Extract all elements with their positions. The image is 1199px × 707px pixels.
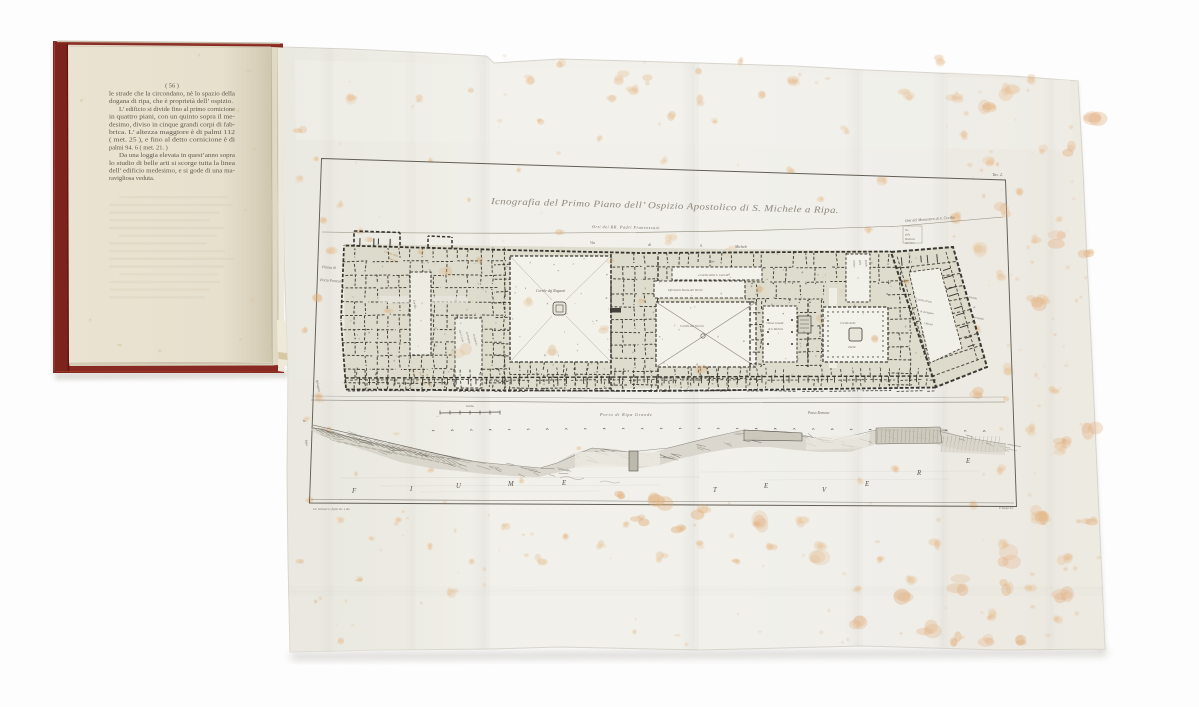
svg-text:Zitelle: Zitelle xyxy=(848,345,857,349)
svg-text:Porto di Ripa Grande: Porto di Ripa Grande xyxy=(599,412,653,417)
svg-text:Tav. 2.: Tav. 2. xyxy=(992,172,1003,177)
svg-text:Chiesa Grande: Chiesa Grande xyxy=(766,321,784,325)
svg-text:Via: Via xyxy=(590,241,595,245)
svg-text:E: E xyxy=(864,481,870,488)
svg-text:Madonna: Madonna xyxy=(904,238,916,241)
svg-text:Lit. Salviucci e figlio inc. e: Lit. Salviucci e figlio inc. e dis. xyxy=(312,507,350,511)
svg-text:E: E xyxy=(561,480,567,487)
svg-text:lo studio di belle arti si sco: lo studio di belle arti si scorge tutta … xyxy=(109,160,235,167)
svg-text:dell’Orto: dell’Orto xyxy=(905,242,915,245)
svg-text:della: della xyxy=(905,234,911,237)
svg-text:Michele: Michele xyxy=(734,245,748,249)
svg-text:Cortile delle S. Carrette: Cortile delle S. Carrette xyxy=(700,273,730,277)
svg-text:( 56 ): ( 56 ) xyxy=(165,83,179,90)
svg-text:Scala: Scala xyxy=(466,404,474,408)
svg-text:le strade che la circondano, n: le strade che la circondano, nè lo spazi… xyxy=(109,91,235,98)
svg-text:E: E xyxy=(965,458,971,465)
svg-text:Infermeria Nuova dei Vecchi: Infermeria Nuova dei Vecchi xyxy=(667,288,703,292)
svg-text:di S. Michele: di S. Michele xyxy=(768,327,784,331)
svg-text:Passo Romano: Passo Romano xyxy=(807,411,830,415)
svg-text:in quattro piani, con un quint: in quattro piani, con un quinto sopra il… xyxy=(109,114,235,121)
svg-text:ravigliosa veduta.: ravigliosa veduta. xyxy=(109,175,155,182)
svg-text:F. Ruspi inc.: F. Ruspi inc. xyxy=(998,506,1014,510)
svg-text:F: F xyxy=(351,488,357,495)
svg-text:palmi 94. 6 ( met. 21. ): palmi 94. 6 ( met. 21. ) xyxy=(109,144,168,151)
svg-text:M: M xyxy=(507,481,514,488)
svg-text:dogana di ripa, che è propriet: dogana di ripa, che è proprietà dell’ os… xyxy=(109,98,233,105)
svg-text:brica. L’ altezza maggiore è d: brica. L’ altezza maggiore è di palmi 11… xyxy=(109,129,235,136)
svg-text:E: E xyxy=(763,483,769,490)
svg-text:di: di xyxy=(648,243,651,247)
svg-text:Da una loggia elevata in quest: Da una loggia elevata in quest’anno sopr… xyxy=(119,152,235,159)
svg-text:Cortile dei Vecchi: Cortile dei Vecchi xyxy=(680,324,704,328)
svg-text:L’ edificio si divide fino al: L’ edificio si divide fino al primo corn… xyxy=(119,106,235,113)
svg-text:R: R xyxy=(916,470,922,477)
svg-text:…: … xyxy=(436,414,439,418)
svg-text:Cortile delle: Cortile delle xyxy=(840,321,856,325)
svg-text:( met. 25 ), e fino al detto c: ( met. 25 ), e fino al detto cornicione … xyxy=(109,137,235,144)
svg-text:S.: S. xyxy=(700,244,703,248)
svg-text:dell’ edificio medesimo, e si: dell’ edificio medesimo, e si gode di un… xyxy=(109,168,235,175)
svg-text:desimo, diviso in cinque grand: desimo, diviso in cinque grandi corpi di… xyxy=(109,121,235,128)
